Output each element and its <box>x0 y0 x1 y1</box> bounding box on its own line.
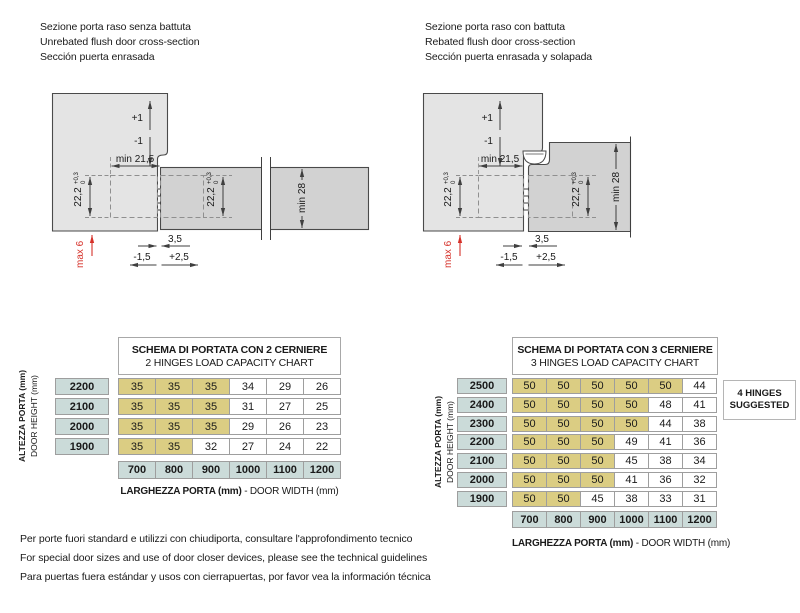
table-row: 2500505050505044 <box>457 378 717 394</box>
door-height-cell: 1900 <box>55 438 109 455</box>
capacity-value-cell: 50 <box>580 453 615 469</box>
table-row: 2000505050413632 <box>457 472 717 488</box>
capacity-value-cell: 26 <box>266 418 304 435</box>
table-row: 2000353535292623 <box>55 418 341 435</box>
capacity-value-cell: 38 <box>614 491 649 507</box>
capacity-value-cell: 41 <box>614 472 649 488</box>
capacity-value-cell: 50 <box>546 416 581 432</box>
heading-line-it: Sezione porta raso senza battuta <box>40 20 199 35</box>
door-width-cell: 700 <box>118 461 156 479</box>
heading-line-it: Sezione porta raso con battuta <box>425 20 592 35</box>
table-row: 2100505050453834 <box>457 453 717 469</box>
capacity-value-cell: 38 <box>648 453 683 469</box>
capacity-value-cell: 50 <box>546 434 581 450</box>
capacity-value-cell: 35 <box>192 418 230 435</box>
capacity-value-cell: 35 <box>118 418 156 435</box>
capacity-value-cell: 35 <box>118 438 156 455</box>
svg-text:22,2: 22,2 <box>443 187 454 207</box>
lateral-adjust-neg-label: -1,5 <box>133 252 151 263</box>
heading-line-en: Rebated flush door cross-section <box>425 35 592 50</box>
capacity-value-cell: 33 <box>648 491 683 507</box>
capacity-value-cell: 23 <box>303 418 341 435</box>
min-door-thickness-dimension: min 28 <box>294 180 308 216</box>
capacity-value-cell: 22 <box>303 438 341 455</box>
capacity-value-cell: 34 <box>229 378 267 395</box>
unrebated-door-cross-section-diagram: +1 -1 min 21,5 22,2 +0,3 0 22,2 +0,3 0 m… <box>40 85 380 285</box>
capacity-value-cell: 24 <box>266 438 304 455</box>
min-reveal-dimension: min 21,5 <box>116 154 155 165</box>
svg-text:+0,3: +0,3 <box>444 171 450 184</box>
capacity-value-cell: 26 <box>303 378 341 395</box>
capacity-value-cell: 35 <box>192 378 230 395</box>
heading-line-es: Sección puerta enrasada <box>40 50 199 65</box>
capacity-value-cell: 50 <box>546 472 581 488</box>
capacity-value-cell: 35 <box>118 398 156 415</box>
capacity-value-cell: 35 <box>155 378 193 395</box>
right-table-footer: 700800900100011001200 <box>512 511 717 528</box>
capacity-value-cell: 50 <box>512 453 547 469</box>
capacity-value-cell: 50 <box>512 416 547 432</box>
svg-text:max 6: max 6 <box>443 240 454 268</box>
table-row: 2200353535342926 <box>55 378 341 395</box>
capacity-value-cell: 41 <box>682 397 717 413</box>
capacity-value-cell: 50 <box>614 397 649 413</box>
svg-text:+0,3: +0,3 <box>74 171 80 184</box>
capacity-value-cell: 35 <box>192 398 230 415</box>
door-width-cell: 800 <box>546 511 581 528</box>
door-width-cell: 700 <box>512 511 547 528</box>
capacity-value-cell: 50 <box>614 378 649 394</box>
door-height-cell: 2100 <box>55 398 109 415</box>
door-height-cell: 2000 <box>55 418 109 435</box>
capacity-value-cell: 48 <box>648 397 683 413</box>
capacity-value-cell: 45 <box>614 453 649 469</box>
capacity-value-cell: 35 <box>118 378 156 395</box>
hinge-knuckle-marks <box>524 189 529 210</box>
capacity-value-cell: 36 <box>682 434 717 450</box>
door-width-cell: 900 <box>192 461 230 479</box>
capacity-value-cell: 50 <box>580 434 615 450</box>
capacity-value-cell: 49 <box>614 434 649 450</box>
capacity-value-cell: 34 <box>682 453 717 469</box>
capacity-value-cell: 44 <box>648 416 683 432</box>
chart-title-it: SCHEMA DI PORTATA CON 3 CERNIERE <box>517 343 712 357</box>
capacity-value-cell: 50 <box>546 491 581 507</box>
door-width-cell: 1200 <box>682 511 717 528</box>
vertical-adjust-down-label: -1 <box>134 136 143 147</box>
door-width-cell: 900 <box>580 511 615 528</box>
capacity-value-cell: 50 <box>546 453 581 469</box>
door-height-cell: 2100 <box>457 453 507 469</box>
capacity-value-cell: 31 <box>229 398 267 415</box>
capacity-value-cell: 50 <box>614 416 649 432</box>
svg-text:22,2: 22,2 <box>206 187 217 207</box>
gasket-seal-shape <box>523 151 546 164</box>
heading-line-en: Unrebated flush door cross-section <box>40 35 199 50</box>
footnote-es: Para puertas fuera estándar y usos con c… <box>20 568 431 587</box>
capacity-value-cell: 50 <box>580 397 615 413</box>
door-height-cell: 1900 <box>457 491 507 507</box>
table-row: 2300505050504438 <box>457 416 717 432</box>
capacity-value-cell: 44 <box>682 378 717 394</box>
max-offset-dimension: max 6 <box>443 240 454 268</box>
capacity-value-cell: 35 <box>155 398 193 415</box>
footnote-it: Per porte fuori standard e utilizzi con … <box>20 530 431 549</box>
footnote-en: For special door sizes and use of door c… <box>20 549 431 568</box>
capacity-value-cell: 50 <box>512 397 547 413</box>
capacity-value-cell: 50 <box>512 378 547 394</box>
table-row: 2200505050494136 <box>457 434 717 450</box>
capacity-value-cell: 29 <box>229 418 267 435</box>
chart-title-it: SCHEMA DI PORTATA CON 2 CERNIERE <box>132 343 327 357</box>
four-hinges-suggested-note: 4 HINGES SUGGESTED <box>723 380 796 420</box>
svg-text:max 6: max 6 <box>75 240 86 268</box>
capacity-value-cell: 41 <box>648 434 683 450</box>
door-height-cell: 2300 <box>457 416 507 432</box>
door-width-cell: 1100 <box>648 511 683 528</box>
door-width-cell: 1100 <box>266 461 304 479</box>
vertical-adjust-up-label: +1 <box>482 113 494 124</box>
table-row: 1900505045383331 <box>457 491 717 507</box>
capacity-value-cell: 25 <box>303 398 341 415</box>
capacity-value-cell: 31 <box>682 491 717 507</box>
door-width-cell: 1200 <box>303 461 341 479</box>
capacity-value-cell: 32 <box>192 438 230 455</box>
left-table-x-axis-label: LARGHEZZA PORTA (mm) - DOOR WIDTH (mm) <box>118 486 341 497</box>
capacity-value-cell: 50 <box>648 378 683 394</box>
break-gap <box>262 157 271 240</box>
chart-title-en: 2 HINGES LOAD CAPACITY CHART <box>145 357 313 370</box>
capacity-value-cell: 36 <box>648 472 683 488</box>
lateral-adjust-neg-label: -1,5 <box>500 252 518 263</box>
left-table-footer: 700800900100011001200 <box>118 461 341 479</box>
svg-text:+0,3: +0,3 <box>572 171 578 184</box>
door-width-cell: 800 <box>155 461 193 479</box>
capacity-value-cell: 27 <box>266 398 304 415</box>
capacity-value-cell: 50 <box>580 416 615 432</box>
capacity-value-cell: 50 <box>580 472 615 488</box>
svg-text:+0,3: +0,3 <box>207 171 213 184</box>
lateral-adjust-pos-label: +2,5 <box>169 252 189 263</box>
capacity-value-cell: 35 <box>155 418 193 435</box>
table-row: 2100353535312725 <box>55 398 341 415</box>
rebated-door-cross-section-diagram: +1 -1 min 21,5 22,2 +0,3 0 22,2 +0,3 0 m… <box>420 85 760 285</box>
capacity-value-cell: 27 <box>229 438 267 455</box>
min-reveal-dimension: min 21,5 <box>481 154 520 165</box>
capacity-value-cell: 50 <box>546 397 581 413</box>
door-height-cell: 2500 <box>457 378 507 394</box>
rebated-section-heading: Sezione porta raso con battuta Rebated f… <box>425 20 592 65</box>
capacity-value-cell: 32 <box>682 472 717 488</box>
svg-text:22,2: 22,2 <box>73 187 84 207</box>
three-hinges-chart-title: SCHEMA DI PORTATA CON 3 CERNIERE 3 HINGE… <box>512 337 718 375</box>
left-table-y-axis-label: ALTEZZA PORTA (mm) DOOR HEIGHT (mm) <box>17 346 43 486</box>
capacity-value-cell: 50 <box>512 491 547 507</box>
max-offset-dimension: max 6 <box>75 240 86 268</box>
capacity-value-cell: 38 <box>682 416 717 432</box>
svg-text:min 28: min 28 <box>297 183 308 213</box>
capacity-value-cell: 29 <box>266 378 304 395</box>
capacity-value-cell: 50 <box>512 472 547 488</box>
capacity-value-cell: 45 <box>580 491 615 507</box>
unrebated-section-heading: Sezione porta raso senza battuta Unrebat… <box>40 20 199 65</box>
heading-line-es: Sección puerta enrasada y solapada <box>425 50 592 65</box>
capacity-value-cell: 50 <box>580 378 615 394</box>
lateral-adjust-pos-label: +2,5 <box>536 252 556 263</box>
door-height-cell: 2400 <box>457 397 507 413</box>
right-table-y-axis-label: ALTEZZA PORTA (mm) DOOR HEIGHT (mm) <box>433 372 459 512</box>
min-door-thickness-dimension: min 28 <box>608 169 622 205</box>
three-hinges-capacity-table: 2500505050505044240050505050484123005050… <box>457 378 717 510</box>
two-hinges-chart-title: SCHEMA DI PORTATA CON 2 CERNIERE 2 HINGE… <box>118 337 341 375</box>
footnotes: Per porte fuori standard e utilizzi con … <box>20 530 431 587</box>
capacity-value-cell: 50 <box>512 434 547 450</box>
svg-text:22,2: 22,2 <box>571 187 582 207</box>
door-width-cell: 1000 <box>229 461 267 479</box>
right-table-x-axis-label: LARGHEZZA PORTA (mm) - DOOR WIDTH (mm) <box>512 538 718 549</box>
door-width-cell: 1000 <box>614 511 649 528</box>
svg-text:min 28: min 28 <box>611 172 622 202</box>
two-hinges-capacity-table: 2200353535342926210035353531272520003535… <box>55 378 341 458</box>
gap-dimension: 3,5 <box>168 234 182 245</box>
door-height-cell: 2000 <box>457 472 507 488</box>
vertical-adjust-up-label: +1 <box>132 113 144 124</box>
vertical-adjust-down-label: -1 <box>484 136 493 147</box>
datasheet-page: Sezione porta raso senza battuta Unrebat… <box>0 0 800 613</box>
capacity-value-cell: 35 <box>155 438 193 455</box>
door-height-cell: 2200 <box>55 378 109 395</box>
chart-title-en: 3 HINGES LOAD CAPACITY CHART <box>531 357 699 370</box>
capacity-value-cell: 50 <box>546 378 581 394</box>
table-row: 2400505050504841 <box>457 397 717 413</box>
gap-dimension: 3,5 <box>535 234 549 245</box>
door-height-cell: 2200 <box>457 434 507 450</box>
table-row: 1900353532272422 <box>55 438 341 455</box>
